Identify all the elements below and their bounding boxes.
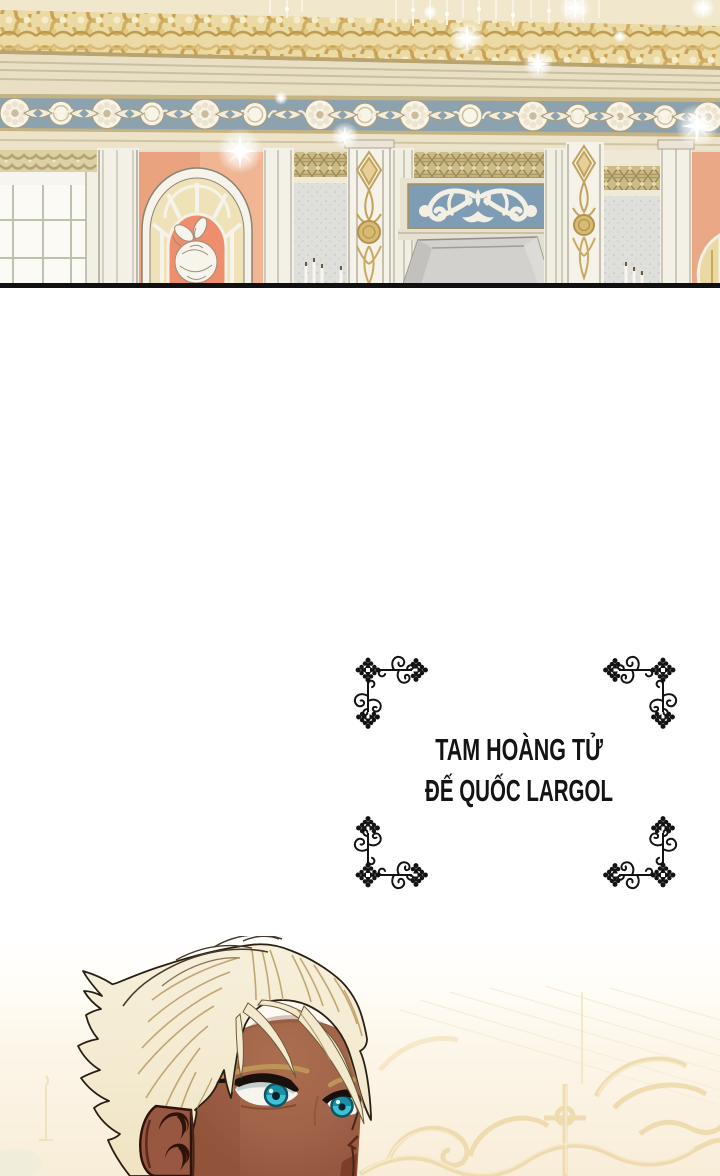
svg-text:TAM HOÀNG TỬ: TAM HOÀNG TỬ [435,732,603,767]
svg-text:ĐẾ QUỐC LARGOL: ĐẾ QUỐC LARGOL [425,773,613,808]
